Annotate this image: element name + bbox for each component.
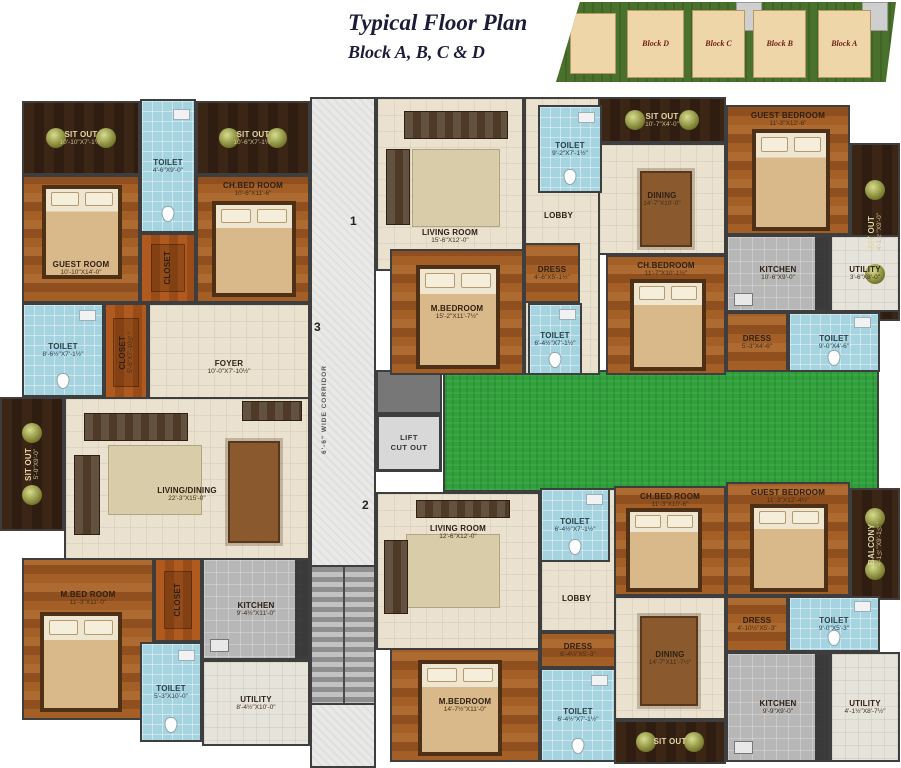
room-dims: 5'-6"X7'-10½" [127,332,135,373]
site-block-c: Block C [692,10,745,78]
room-dress-top-right: DRESS 5'-3"X4'-6" [726,312,788,372]
room-label: KITCHEN [238,601,275,610]
room-label: CH.BED ROOM [223,181,283,190]
sofa-furniture [74,455,100,535]
sofa-furniture [84,413,188,441]
room-sitout-top-center: SIT OUT 10'-6"X7'-1½" [196,101,310,175]
room-label: M.BEDROOM [439,697,491,706]
room-label: DRESS [743,334,772,343]
room-label: TOILET [563,707,593,716]
room-label: CH.BED ROOM [640,492,700,501]
room-kitchen-left: KITCHEN 9'-4½"X11'-0" [202,558,310,660]
room-dims: 5'-3"X10'-0" [154,693,188,701]
flat-number-1: 1 [350,214,357,228]
room-dims: 10'-10"X7'-1½" [60,139,103,147]
dining-table-furniture [228,441,280,543]
rug-furniture [406,534,500,608]
room-label: SIT OUT [867,216,876,249]
room-label: DINING [647,191,676,200]
room-toilet-2b: TOILET 6'-4½"X7'-1½" [540,668,616,762]
room-dims: 11'-3"X10'-6" [652,501,689,509]
room-dress-2: DRESS 6'-4½"X5'-3" [540,632,616,668]
room-dims: 11'-3"X12'-4½" [767,497,809,505]
room-toilet-2a: TOILET 6'-4½"X7'-1½" [540,488,610,562]
page-title: Typical Floor Plan [348,10,527,36]
page-subtitle: Block A, B, C & D [348,42,485,63]
room-label: LIVING ROOM [422,228,478,237]
room-label: M.BEDROOM [431,304,483,313]
site-block-b-label: Block B [766,39,792,48]
room-utility-top-right: UTILITY 3'-6"X8'-0" [830,235,900,312]
room-label: LOBBY [544,211,573,220]
rug-furniture [412,149,500,227]
room-utility-bottom-right: UTILITY 4'-1½"X8'-7½" [830,652,900,762]
room-label: UTILITY [849,265,881,274]
room-living-room-2: LIVING ROOM 12'-6"X12'-0" [376,492,540,650]
site-block-a-label: Block A [831,39,857,48]
room-label: TOILET [540,331,570,340]
room-dims: 8'-6½"X7'-1½" [42,351,83,359]
room-label: TOILET [560,517,590,526]
room-dims: 14'-7"X11'-7½" [649,659,691,667]
bed-furniture [630,279,706,371]
room-label: CLOSET [118,336,127,370]
room-dims: 3'-6"X8'-0" [850,274,880,282]
sofa-furniture [386,149,410,225]
room-label: CH.BEDROOM [637,261,695,270]
site-block-a: Block A [818,10,871,78]
site-block-d-label: Block D [642,39,669,48]
room-label: KITCHEN [760,699,797,708]
room-label: SIT OUT [24,448,33,481]
room-dims: 5'-0"X9'-0" [33,449,41,479]
room-toilet-top-right: TOILET 9'-0"X4'-6" [788,312,880,372]
room-toilet-top-left: TOILET 4'-6"X9'-0" [140,99,196,233]
room-label: TOILET [819,616,849,625]
corridor-width-text: 6'-6" WIDE CORRIDOR [321,365,328,454]
room-label: TOILET [156,684,186,693]
room-label: SIT OUT [65,130,98,139]
room-guest-bedroom-bottom-right: GUEST BEDROOM 11'-3"X12'-4½" [726,482,850,596]
room-toilet-left-3: TOILET 5'-3"X10'-0" [140,642,202,742]
room-label: LOBBY [562,594,591,603]
room-dims: 22'-3"X15'-0" [168,495,205,503]
sofa-furniture [404,111,508,139]
room-dining-top-right: DINING 14'-7"X10'-0" [598,143,726,255]
room-label: TOILET [48,342,78,351]
room-sitout-top-right: SIT OUT 10'-7"X4'-0" [598,97,726,143]
room-label: TOILET [153,158,183,167]
room-label: SIT OUT [237,130,270,139]
sofa-furniture [384,540,408,614]
room-kitchen-bottom-right: KITCHEN 9'-9"X9'-0" [726,652,830,762]
room-dims: 9'-0"X5'-3" [819,625,849,633]
room-dims: 4'-1½"X9'-1½" [876,522,884,566]
room-toilet-bottom-right: TOILET 9'-0"X5'-3" [788,596,880,652]
room-dims: 6'-4½"X7'-1½" [557,716,598,724]
site-block-c-label: Block C [705,39,731,48]
room-label: UTILITY [849,699,881,708]
room-label: LIVING/DINING [157,486,217,495]
room-dims: 4'-1½"X9'-0" [876,213,884,250]
room-dims: 15'-2"X11'-7½" [436,313,478,321]
room-label: GUEST ROOM [53,260,110,269]
room-dims: 10'-6"X11'-6" [235,190,272,198]
room-toilet-1a: TOILET 9'-2"X7'-1½" [538,105,602,193]
room-closet-left-3: CLOSET [154,558,202,642]
room-label: FOYER [215,359,244,368]
room-utility-left: UTILITY 8'-4½"X10'-0" [202,660,310,746]
room-dims: 9'-0"X4'-6" [819,343,849,351]
bed-furniture [750,504,828,592]
staircase [310,565,376,705]
room-label: TOILET [555,141,585,150]
room-dims: 9'-9"X9'-0" [763,708,793,716]
green-courtyard [443,370,879,492]
room-label: SIT OUT [654,737,687,746]
room-dims: 10'-0"X7'-10½" [208,368,251,376]
room-dims: 6'-4½"X7'-1½" [554,526,595,534]
service-shaft [376,370,442,414]
room-closet-left-2: CLOSET 5'-6"X7'-10½" [104,303,148,402]
room-guest-bedroom-top-right: GUEST BEDROOM 11'-3"X12'-6" [726,105,850,235]
room-sitout-top-left: SIT OUT 10'-10"X7'-1½" [22,101,140,175]
room-label: M.BED ROOM [61,590,116,599]
bed-furniture [752,129,830,231]
room-dims: 15'-6"X12'-0" [431,237,468,245]
room-dims: 6'-4½"X7'-1½" [534,340,575,348]
room-dims: 11'-3"X12'-6" [770,120,807,128]
room-dress-1: DRESS 4'-6"X5'-1½" [524,243,580,303]
room-closet-mid: CLOSET [140,233,196,303]
room-kitchen-top-right: KITCHEN 10'-6"X9'-0" [726,235,830,312]
floor-plan-canvas: Typical Floor Plan Block A, B, C & D Blo… [0,0,901,768]
room-dims: 10'-10"X14'-0" [60,269,101,277]
bed-furniture [626,508,702,592]
flat-number-3: 3 [314,320,321,334]
site-block-d: Block D [627,10,683,78]
room-label: DRESS [564,642,593,651]
room-dims: 11'-7"X10'-1½" [645,270,687,278]
site-block-end [570,13,616,74]
room-mbedroom-1: M.BEDROOM 15'-2"X11'-7½" [390,249,524,375]
room-ch-bedroom-left: CH.BED ROOM 10'-6"X11'-6" [196,175,310,303]
room-sitout-left-mid: SIT OUT 5'-0"X9'-0" [0,397,64,531]
room-dims: 10'-7"X4'-0" [645,121,679,129]
room-label: LIVING ROOM [430,524,486,533]
room-label: BALCONY [867,524,876,565]
lift-label-line2: CUT OUT [391,443,428,453]
bed-furniture [40,612,122,712]
room-dims: 11'-3"X11'-0" [70,599,107,607]
room-dining-bottom-right: DINING 14'-7"X11'-7½" [614,596,726,720]
room-dims: 8'-4½"X10'-0" [236,704,275,712]
room-dims: 4'-6"X9'-0" [153,167,183,175]
room-dims: 9'-2"X7'-1½" [552,150,588,158]
room-label: CLOSET [163,251,172,285]
room-ch-bedroom-top-right: CH.BEDROOM 11'-7"X10'-1½" [606,255,726,375]
room-guest-room: GUEST ROOM 10'-10"X14'-0" [22,175,140,303]
bed-furniture [212,201,296,297]
room-label: KITCHEN [760,265,797,274]
tv-cabinet-furniture [416,500,510,518]
room-dims: 9'-4½"X11'-0" [237,610,276,618]
room-label: GUEST BEDROOM [751,488,825,497]
room-dims: 14'-7"X10'-0" [643,200,680,208]
room-dims: 5'-3"X4'-6" [742,343,772,351]
room-label: UTILITY [240,695,272,704]
room-mbedroom-2: M.BEDROOM 14'-7½"X11'-0" [390,648,540,762]
room-balcony-bottom-right: BALCONY 4'-1½"X9'-1½" [850,488,900,600]
site-block-b: Block B [753,10,806,78]
room-label: DINING [655,650,684,659]
room-dims: 4'-6"X5'-1½" [534,274,570,282]
room-dims: 12'-6"X12'-0" [439,533,476,541]
room-toilet-left-2: TOILET 8'-6½"X7'-1½" [22,303,104,397]
room-label: GUEST BEDROOM [751,111,825,120]
room-toilet-1b: TOILET 6'-4½"X7'-1½" [528,303,582,375]
room-sitout-bottom: SIT OUT [614,720,726,764]
room-dims: 10'-6"X7'-1½" [233,139,272,147]
room-living-room-1: LIVING ROOM 15'-6"X12'-0" [376,97,524,271]
corridor-label: 6'-6" WIDE CORRIDOR [316,319,332,499]
room-dims: 14'-7½"X11'-0" [444,706,486,714]
site-plan-inset: Block D Block C Block B Block A [556,2,896,82]
rug-furniture [108,445,202,515]
room-ch-bedroom-bottom-right: CH.BED ROOM 11'-3"X10'-6" [614,486,726,596]
room-label: SIT OUT [646,112,679,121]
room-dims: 6'-4½"X5'-3" [560,651,596,659]
room-label: TOILET [819,334,849,343]
room-label: CLOSET [173,583,182,617]
room-dress-bottom-right: DRESS 4'-10½"X5'-3" [726,596,788,652]
room-dims: 10'-6"X9'-0" [761,274,795,282]
lift-cut-out: LIFT CUT OUT [376,414,442,472]
room-mbedroom-left: M.BED ROOM 11'-3"X11'-0" [22,558,154,720]
dining-table-furniture [640,171,692,247]
room-label: DRESS [538,265,567,274]
room-dims: 4'-10½"X5'-3" [737,625,776,633]
flat-number-2: 2 [362,498,369,512]
room-label: DRESS [743,616,772,625]
lift-label-line1: LIFT [400,433,418,443]
sofa-furniture [242,401,302,421]
room-dims: 4'-1½"X8'-7½" [844,708,885,716]
